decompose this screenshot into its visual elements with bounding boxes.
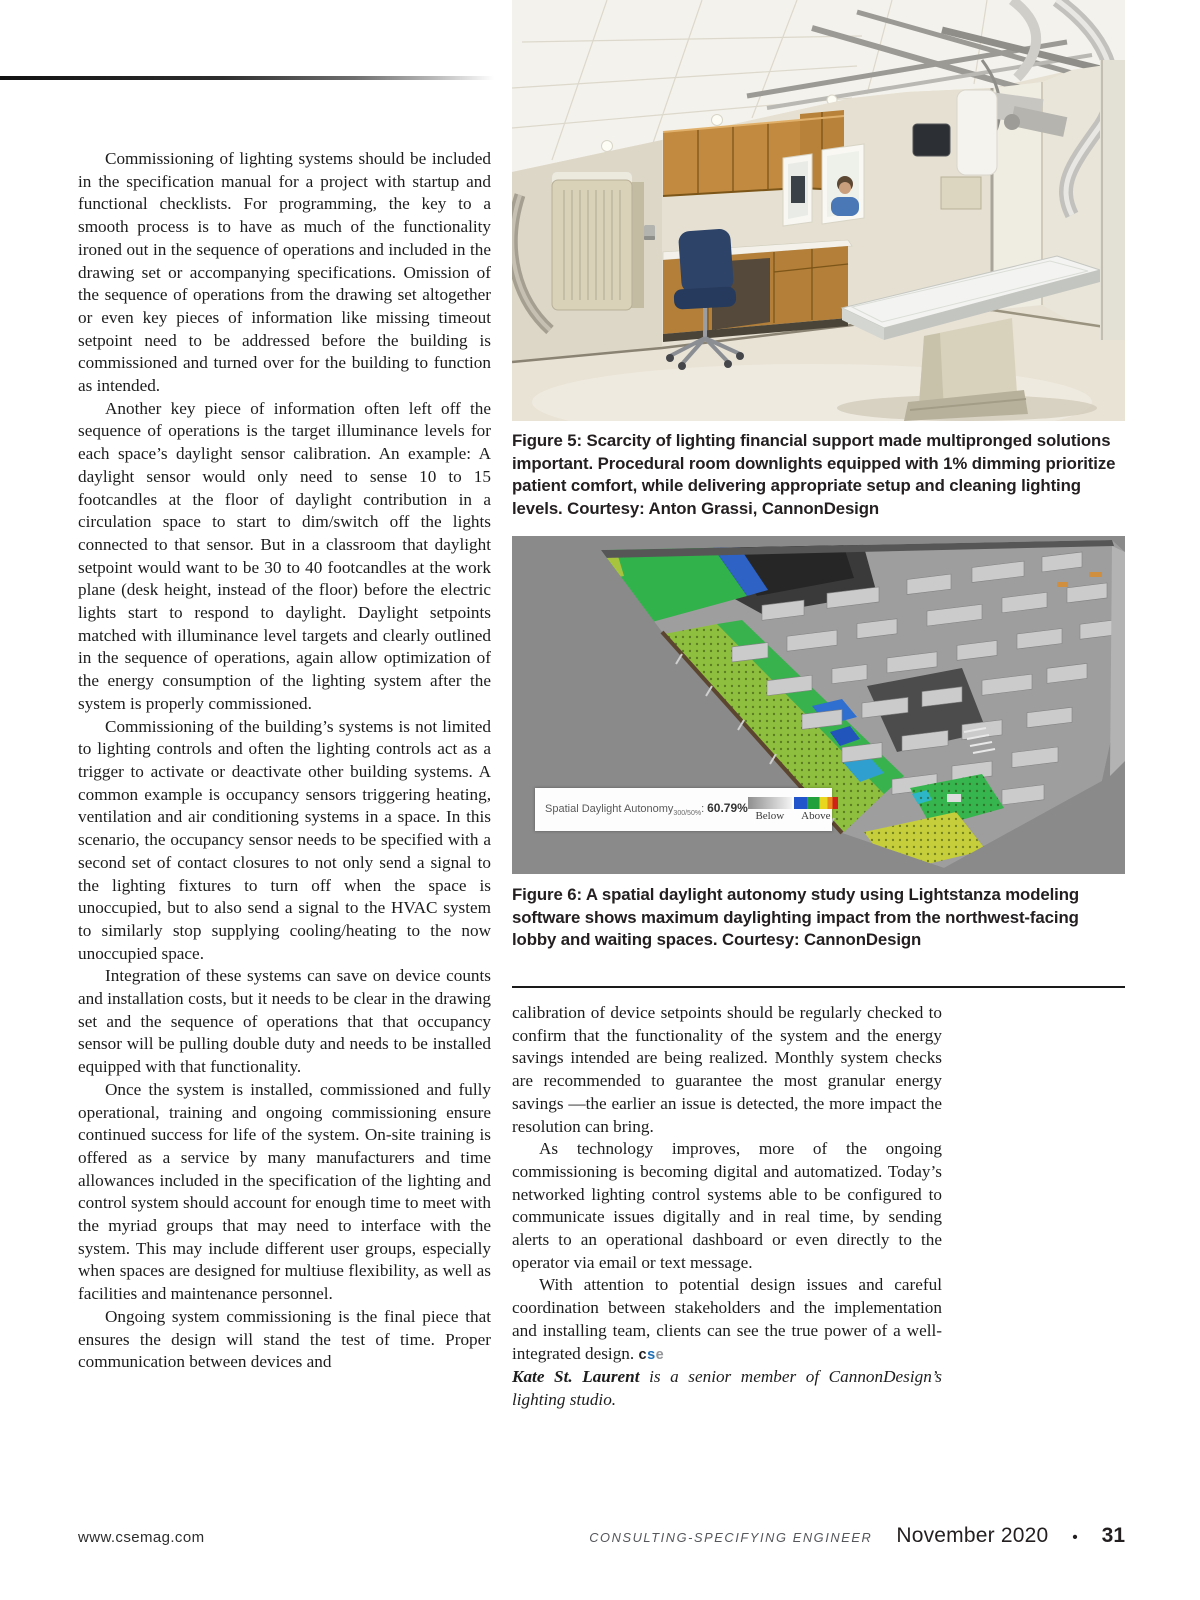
figure5-photo-procedure-room	[512, 0, 1125, 421]
paragraph: Integration of these systems can save on…	[78, 965, 491, 1079]
footer-website: www.csemag.com	[78, 1529, 204, 1546]
article-right-column: calibration of device setpoints should b…	[512, 1002, 942, 1412]
paragraph: Commissioning of lighting systems should…	[78, 148, 491, 398]
author-name: Kate St. Laurent	[512, 1367, 640, 1386]
footer-bullet: •	[1072, 1529, 1077, 1546]
sda-color-scale: Below Above	[748, 797, 838, 822]
sda-metric-value: 60.79%	[707, 801, 748, 815]
footer-page-number: 31	[1102, 1524, 1125, 1548]
sda-metric: Spatial Daylight Autonomy300/50%:60.79%	[545, 801, 748, 817]
page-footer: www.csemag.com CONSULTING-SPECIFYING ENG…	[78, 1524, 1125, 1548]
figure6-legend: Spatial Daylight Autonomy300/50%:60.79% …	[535, 788, 832, 831]
paragraph: Ongoing system commissioning is the fina…	[78, 1306, 491, 1374]
top-rule	[0, 76, 494, 80]
figure5-caption: Figure 5: Scarcity of lighting financial…	[512, 430, 1125, 520]
paragraph: Commissioning of the building’s systems …	[78, 716, 491, 966]
end-mark-letter: s	[647, 1347, 656, 1363]
article-left-column: Commissioning of lighting systems should…	[78, 148, 491, 1374]
cse-end-mark: cse	[638, 1347, 664, 1363]
paragraph: As technology improves, more of the ongo…	[512, 1138, 942, 1274]
end-mark-letter: e	[656, 1347, 665, 1363]
paragraph: Another key piece of information often l…	[78, 398, 491, 716]
sda-scale-above-label: Above	[801, 810, 830, 822]
figure6-daylight-study: Spatial Daylight Autonomy300/50%:60.79% …	[512, 536, 1125, 874]
section-divider-rule	[512, 986, 1125, 988]
magazine-page: { "article": { "left_column": { "paragra…	[0, 0, 1200, 1600]
sda-scale-above-bar	[794, 797, 838, 809]
paragraph: Once the system is installed, commission…	[78, 1079, 491, 1306]
end-mark-letter: c	[638, 1347, 647, 1363]
sda-scale-below-bar	[748, 797, 792, 809]
paragraph: calibration of device setpoints should b…	[512, 1002, 942, 1138]
sda-metric-label: Spatial Daylight Autonomy	[545, 803, 673, 815]
paragraph: With attention to potential design issue…	[512, 1274, 942, 1366]
figure6-caption: Figure 6: A spatial daylight autonomy st…	[512, 884, 1125, 952]
footer-issue-date: November 2020	[896, 1524, 1048, 1548]
footer-magazine-name: CONSULTING-SPECIFYING ENGINEER	[589, 1530, 872, 1545]
procedure-room-illustration	[512, 0, 1125, 421]
sda-metric-separator: :	[701, 803, 704, 815]
sda-metric-subscript: 300/50%	[673, 811, 701, 818]
author-bio: Kate St. Laurent is a senior member of C…	[512, 1366, 942, 1411]
sda-scale-below-label: Below	[755, 810, 784, 822]
paragraph-text: With attention to potential design issue…	[512, 1275, 942, 1362]
